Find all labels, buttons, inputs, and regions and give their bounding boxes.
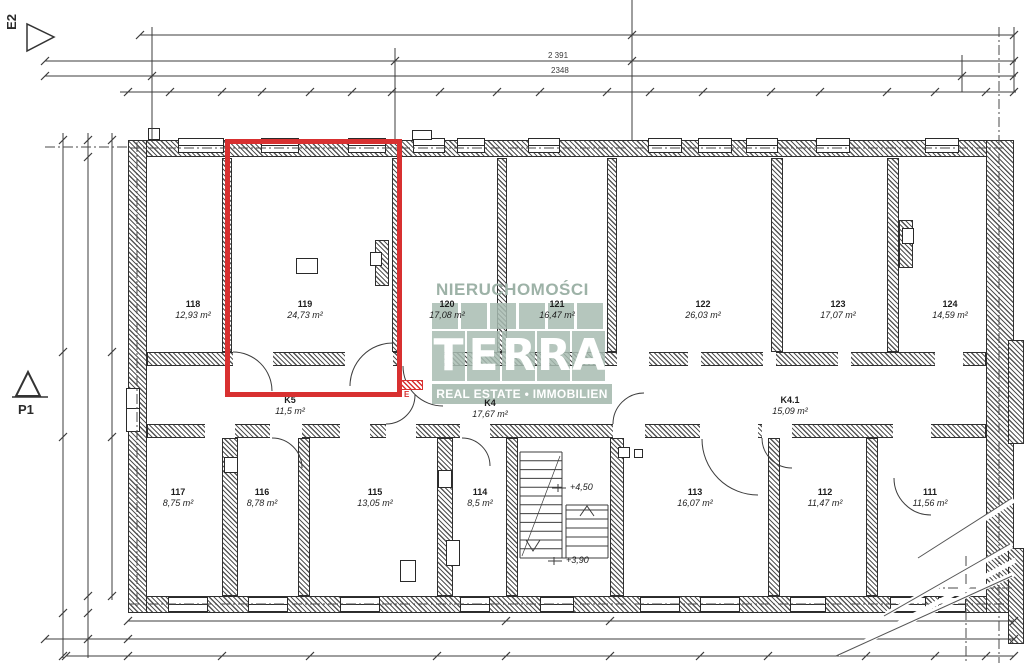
room-label-lower: 1168,78 m² (217, 487, 307, 510)
watermark-logo-letter: R (502, 331, 535, 381)
room-label-lower: 1178,75 m² (133, 487, 223, 510)
watermark-company-name: NIERUCHOMOŚCI (436, 280, 589, 300)
room-number: 120 (402, 299, 492, 310)
room-number: K4 (445, 398, 535, 409)
room-area: 8,78 m² (217, 498, 307, 509)
room-label-lower: 1148,5 m² (435, 487, 525, 510)
room-label-lower: 11211,47 m² (780, 487, 870, 510)
floor-plan-canvas: NIERUCHOMOŚCI TERRA REAL ESTATE • IMMOBI… (0, 0, 1024, 665)
room-area: 17,67 m² (445, 409, 535, 420)
p1-triangle-icon (16, 372, 40, 396)
room-number: 114 (435, 487, 525, 498)
corridor-label: K417,67 m² (445, 398, 535, 421)
corridor-label: K511,5 m² (245, 395, 335, 418)
room-area: 14,59 m² (905, 310, 995, 321)
room-number: 111 (885, 487, 975, 498)
dimension-inner-width: 2348 (551, 66, 569, 75)
room-label-upper: 12226,03 m² (658, 299, 748, 322)
room-label-upper: 12317,07 m² (793, 299, 883, 322)
corridor-label: K4.115,09 m² (745, 395, 835, 418)
room-label-upper: 12116,47 m² (512, 299, 602, 322)
room-number: 116 (217, 487, 307, 498)
room-label-lower: 11316,07 m² (650, 487, 740, 510)
room-number: 112 (780, 487, 870, 498)
room-area: 16,07 m² (650, 498, 740, 509)
level-annotation: +3,90 (566, 555, 589, 565)
level-annotation: +4,50 (570, 482, 593, 492)
room-area: 15,09 m² (745, 406, 835, 417)
room-area: 17,08 m² (402, 310, 492, 321)
room-area: 8,75 m² (133, 498, 223, 509)
e2-triangle-icon (27, 24, 54, 51)
room-area: 26,03 m² (658, 310, 748, 321)
room-label-upper: 12414,59 m² (905, 299, 995, 322)
room-number: 123 (793, 299, 883, 310)
room-number: 121 (512, 299, 602, 310)
watermark-logo-letter: E (467, 331, 500, 381)
watermark-logo-letter: R (537, 331, 570, 381)
room-label-upper: 12017,08 m² (402, 299, 492, 322)
highlighted-room-outline (225, 139, 402, 397)
room-area: 16,47 m² (512, 310, 602, 321)
dimension-total-width: 2 391 (548, 51, 568, 60)
room-number: 124 (905, 299, 995, 310)
electrical-label: E (404, 390, 409, 399)
room-number: K4.1 (745, 395, 835, 406)
electrical-box (401, 380, 423, 390)
watermark-logo-letter: A (572, 331, 605, 381)
room-area: 17,07 m² (793, 310, 883, 321)
watermark-logo-letter: T (432, 331, 465, 381)
room-label-lower: 11513,05 m² (330, 487, 420, 510)
room-area: 8,5 m² (435, 498, 525, 509)
room-area: 11,56 m² (885, 498, 975, 509)
room-number: 117 (133, 487, 223, 498)
room-number: 122 (658, 299, 748, 310)
room-label-lower: 11111,56 m² (885, 487, 975, 510)
room-number: 115 (330, 487, 420, 498)
room-area: 13,05 m² (330, 498, 420, 509)
section-marker-p1: P1 (18, 402, 34, 417)
room-area: 11,47 m² (780, 498, 870, 509)
room-area: 11,5 m² (245, 406, 335, 417)
room-number: 113 (650, 487, 740, 498)
section-marker-e2: E2 (4, 14, 19, 30)
